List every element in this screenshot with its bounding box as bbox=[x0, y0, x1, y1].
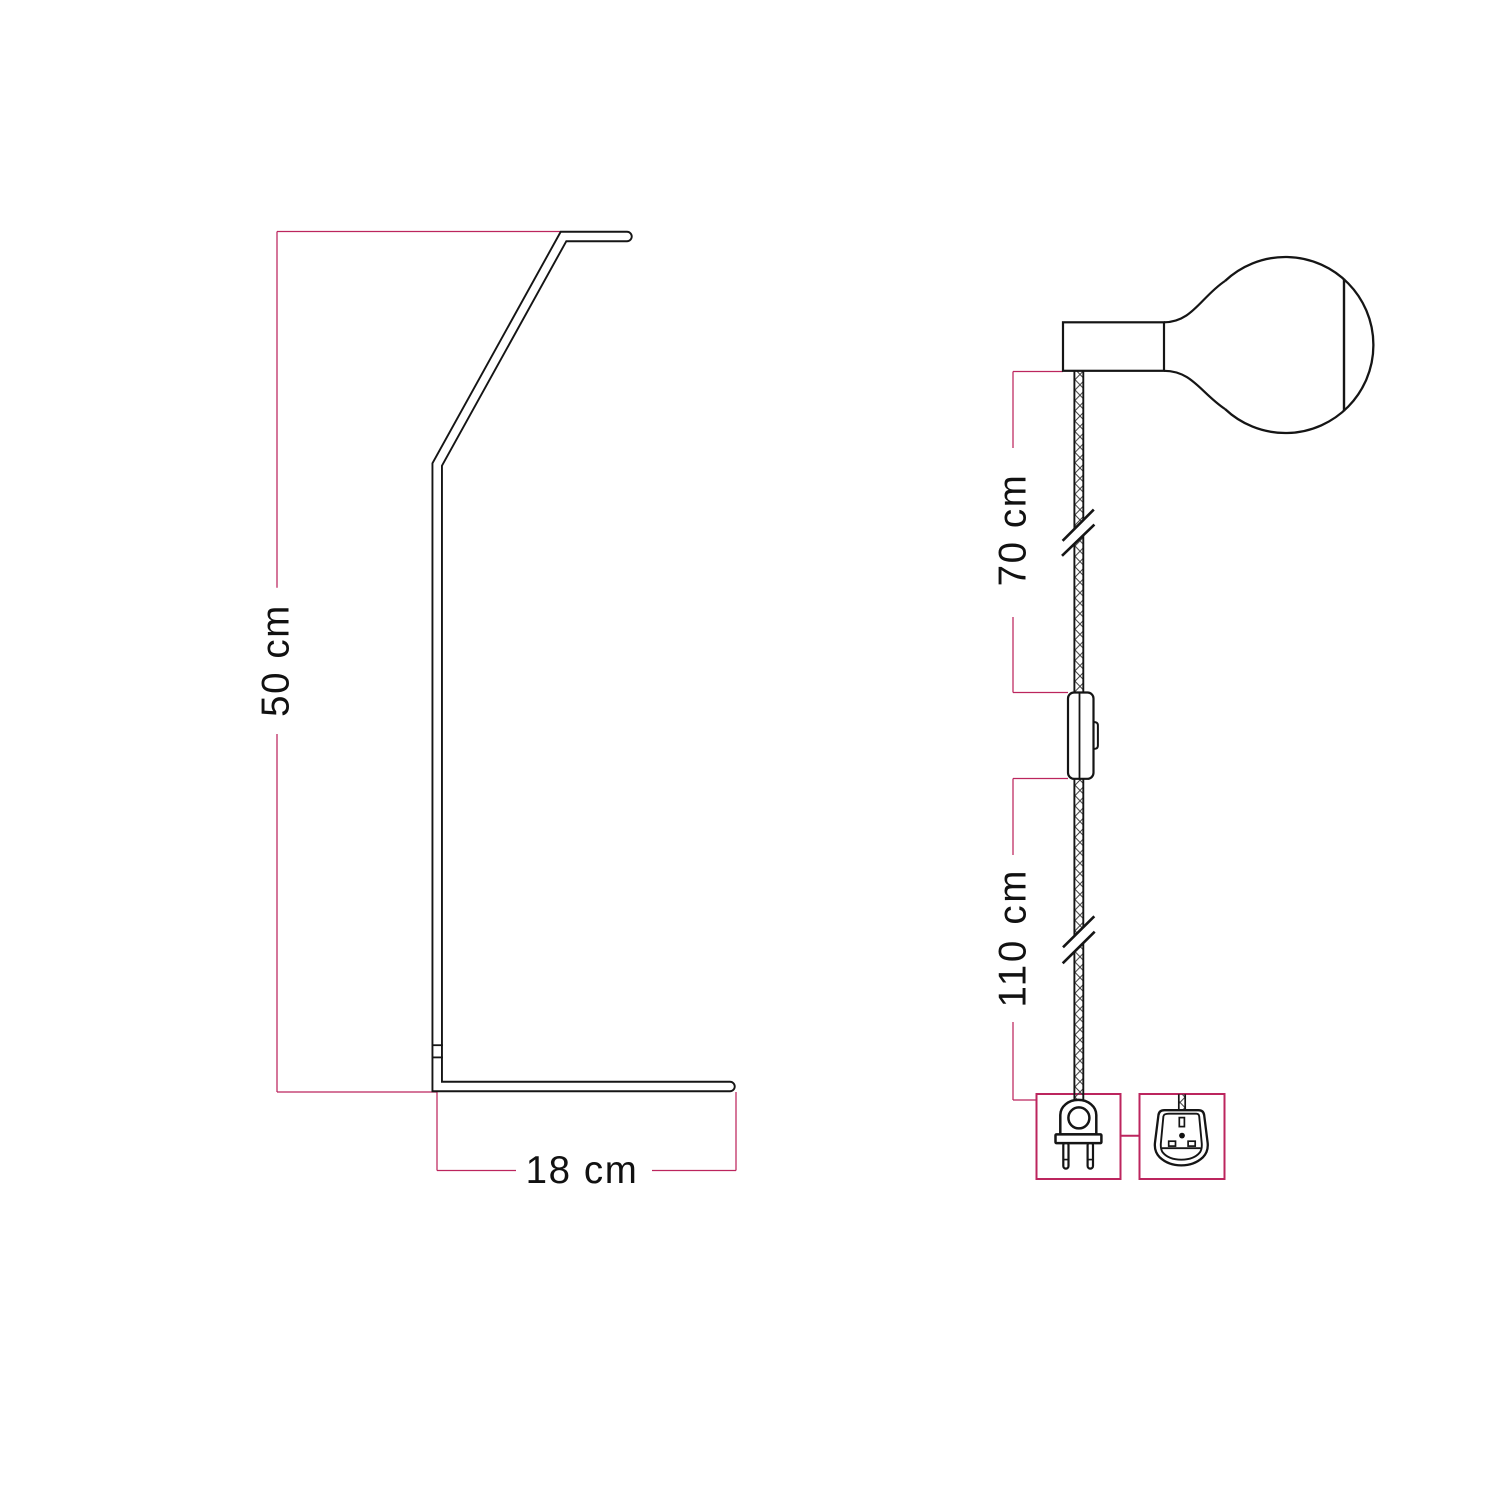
svg-text:50 cm: 50 cm bbox=[254, 604, 297, 717]
svg-text:18 cm: 18 cm bbox=[526, 1149, 639, 1192]
svg-text:70 cm: 70 cm bbox=[992, 474, 1035, 587]
svg-text:110 cm: 110 cm bbox=[992, 868, 1035, 1008]
